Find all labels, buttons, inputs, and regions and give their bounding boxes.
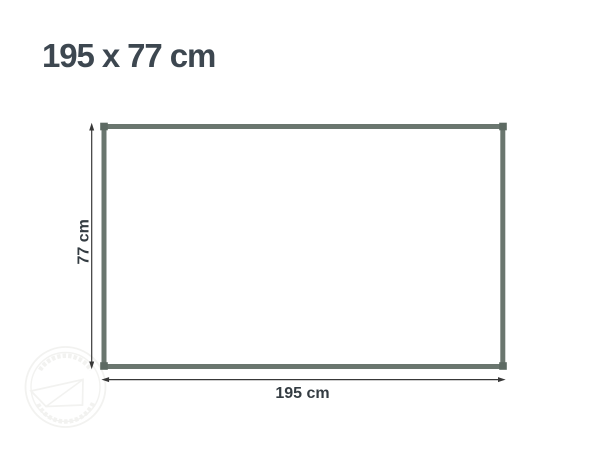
svg-text:195 cm: 195 cm (275, 385, 329, 402)
svg-text:77 cm: 77 cm (76, 219, 93, 264)
